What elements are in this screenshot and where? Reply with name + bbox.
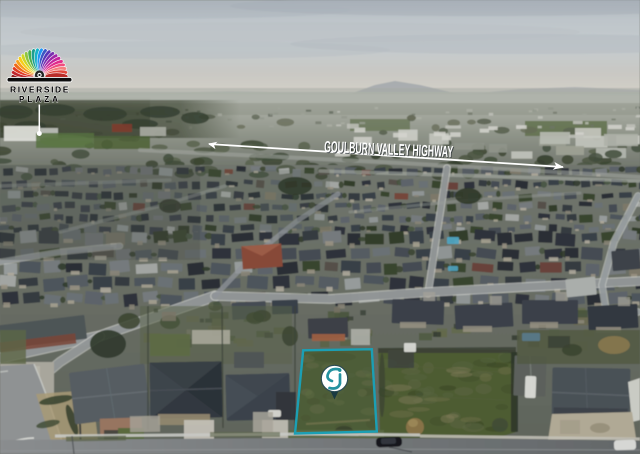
svg-text:PLAZA: PLAZA (19, 94, 61, 104)
